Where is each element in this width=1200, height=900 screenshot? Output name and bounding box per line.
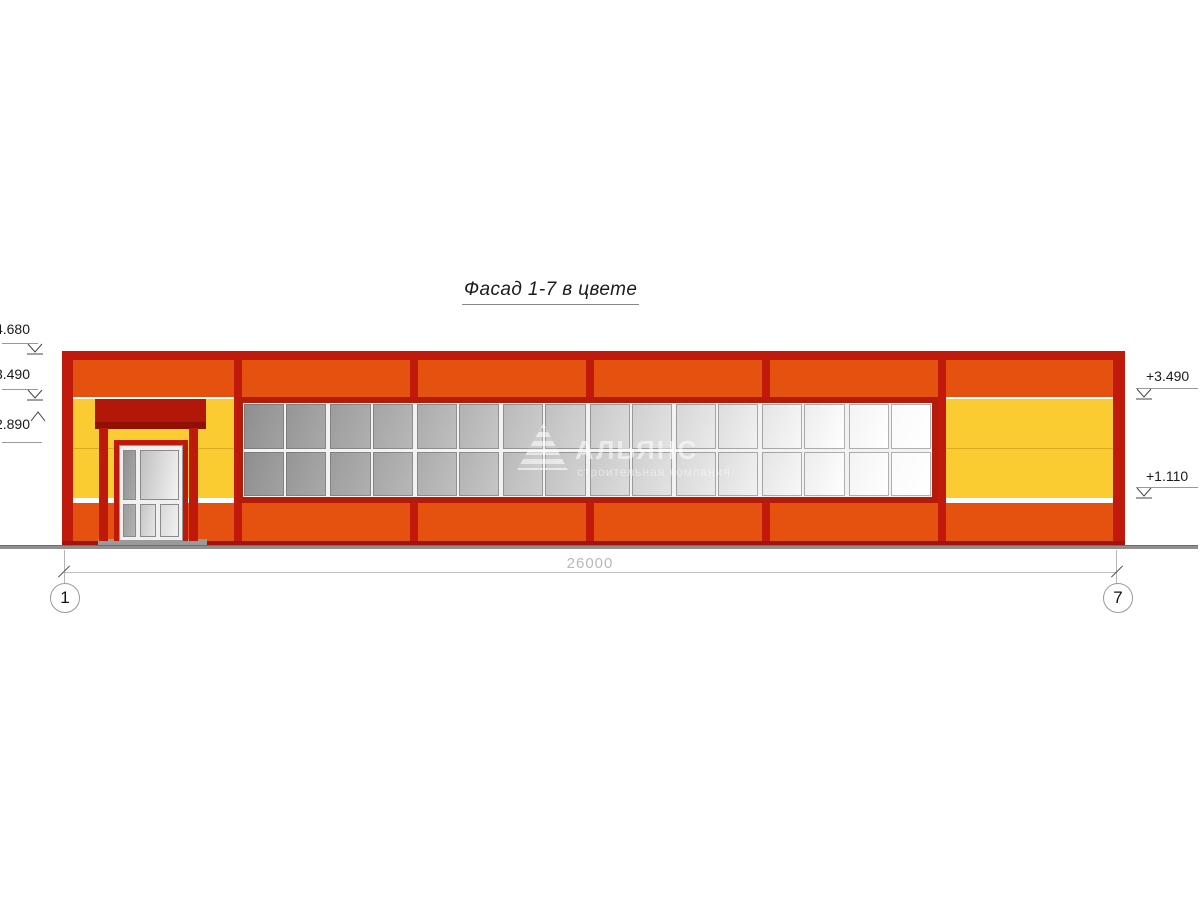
window-pane [632,452,672,497]
facade-drawing-sheet: Фасад 1-7 в цвете [0,0,1200,900]
window-pane [244,452,284,497]
elevation-label: +1.110 [1146,468,1188,484]
window-row-top [244,404,931,449]
window-pane [503,404,543,449]
window-pane [804,452,844,497]
extension-line-left [64,550,65,584]
door-pane [160,504,179,537]
window-pane [632,404,672,449]
window-strip [237,397,938,503]
axis-bubble-1: 1 [50,583,80,613]
panel-joint-line [946,448,1113,449]
elevation-arrow-down-icon [27,389,43,401]
dimension-label: 26000 [490,555,690,572]
window-pane [590,404,630,449]
elevation-arrow-down-icon [1136,487,1152,499]
window-pane [849,452,889,497]
window-pane [718,452,758,497]
window-pane [804,404,844,449]
window-pane [676,452,716,497]
window-pane [718,404,758,449]
window-pane [373,404,413,449]
window-pane [545,404,585,449]
yellow-panel-right [946,399,1113,498]
canopy-post-right [189,428,198,541]
window-pane [286,404,326,449]
dimension-line [64,572,1117,573]
window-pane [891,404,931,449]
door-pane [123,504,136,537]
pilaster-axis-7 [1113,360,1125,541]
window-pane [373,452,413,497]
window-pane [459,452,499,497]
window-pane [545,452,585,497]
elevation-leader [2,442,42,443]
elevation-label: +4.680 [0,321,30,337]
window-pane [244,404,284,449]
pilaster-axis-6 [938,360,946,541]
window-pane [417,404,457,449]
roof-cap [62,351,1125,360]
window-strip-glazing [244,404,931,496]
entrance-canopy [95,399,206,429]
canopy-post-left [99,428,108,541]
door-pane [140,450,179,500]
elevation-arrow-down-icon [27,343,43,355]
elevation-arrow-down-icon [1136,388,1152,400]
window-pane [762,452,802,497]
window-pane [849,404,889,449]
window-pane [891,452,931,497]
door-pane [123,450,136,500]
pilaster-axis-1 [62,360,73,541]
window-pane [459,404,499,449]
elevation-label: +2.890 [0,416,30,432]
window-pane [286,452,326,497]
drawing-title: Фасад 1-7 в цвете [462,279,639,305]
elevation-label: +3.490 [1146,368,1189,384]
wall-base-strip [62,541,1125,545]
window-pane [762,404,802,449]
extension-line-right [1116,550,1117,584]
window-pane [503,452,543,497]
window-row-bottom [244,452,931,497]
ground-line [0,545,1198,549]
axis-bubble-7: 7 [1103,583,1133,613]
window-pane [590,452,630,497]
elevation-label: +3.490 [0,366,30,382]
window-pane [330,452,370,497]
window-pane [417,452,457,497]
window-pane [676,404,716,449]
window-pane [330,404,370,449]
building-facade [62,351,1125,545]
entrance-door [119,445,183,541]
elevation-arrow-up-icon [30,410,46,422]
door-pane [140,504,156,537]
